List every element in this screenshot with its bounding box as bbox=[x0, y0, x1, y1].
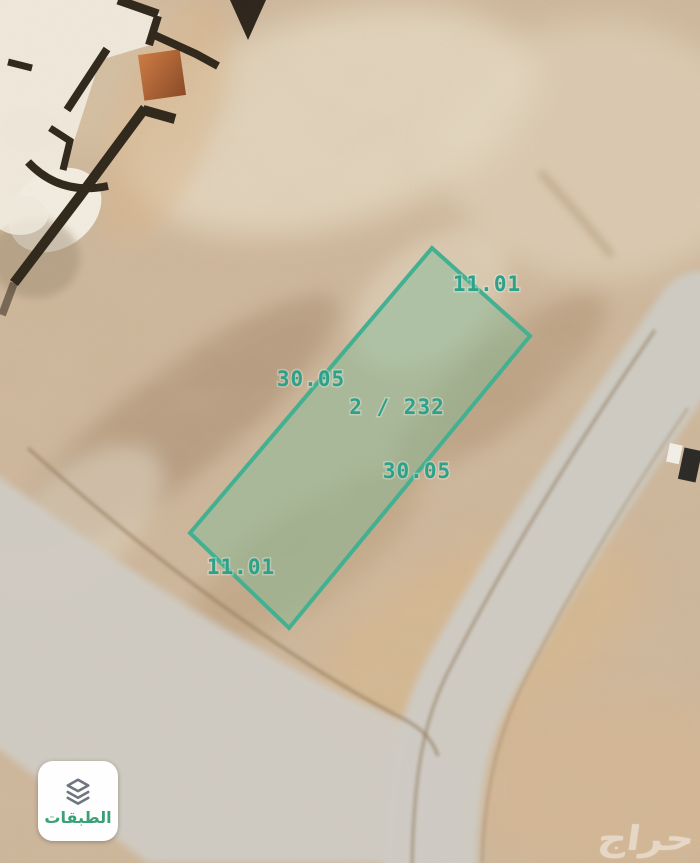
parcel-dimension-top: 11.01 bbox=[453, 272, 521, 296]
parcel-dimension-right: 30.05 bbox=[383, 459, 451, 483]
parcel-dimension-left: 30.05 bbox=[277, 367, 345, 391]
parcel-dimension-bottom: 11.01 bbox=[207, 555, 275, 579]
parcel-number-label: 2 / 232 bbox=[349, 395, 445, 419]
map-canvas: 11.01 30.05 2 / 232 30.05 11.01 bbox=[0, 0, 700, 863]
satellite-map-view[interactable]: 11.01 30.05 2 / 232 30.05 11.01 الطبقات … bbox=[0, 0, 700, 863]
layers-button-label: الطبقات bbox=[44, 810, 111, 826]
layers-button[interactable]: الطبقات bbox=[38, 761, 118, 841]
layers-icon bbox=[60, 777, 96, 807]
